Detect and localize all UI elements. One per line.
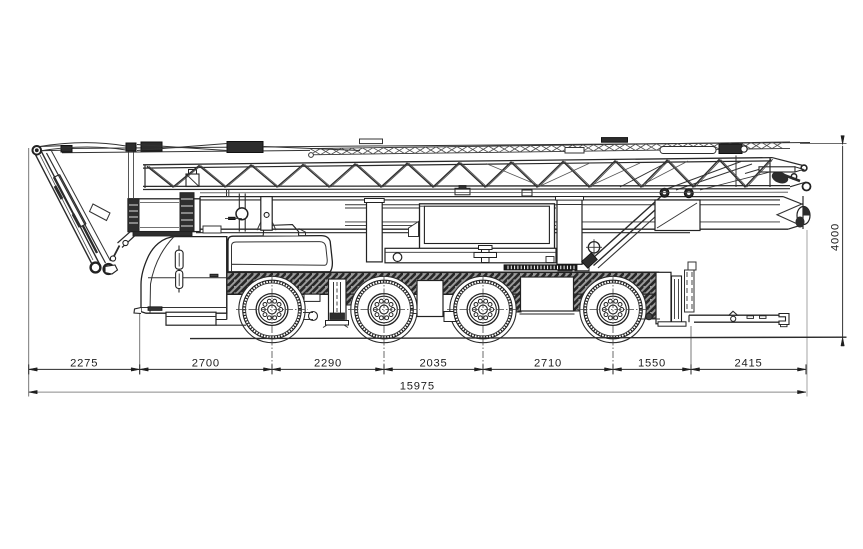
svg-text:2290: 2290 bbox=[314, 358, 342, 370]
svg-text:2415: 2415 bbox=[734, 358, 762, 370]
svg-text:2700: 2700 bbox=[192, 358, 220, 370]
svg-text:2710: 2710 bbox=[534, 358, 562, 370]
svg-text:2035: 2035 bbox=[419, 358, 447, 370]
svg-text:2275: 2275 bbox=[70, 358, 98, 370]
svg-text:1550: 1550 bbox=[638, 358, 666, 370]
svg-text:15975: 15975 bbox=[400, 380, 435, 392]
svg-text:4000: 4000 bbox=[830, 223, 842, 251]
